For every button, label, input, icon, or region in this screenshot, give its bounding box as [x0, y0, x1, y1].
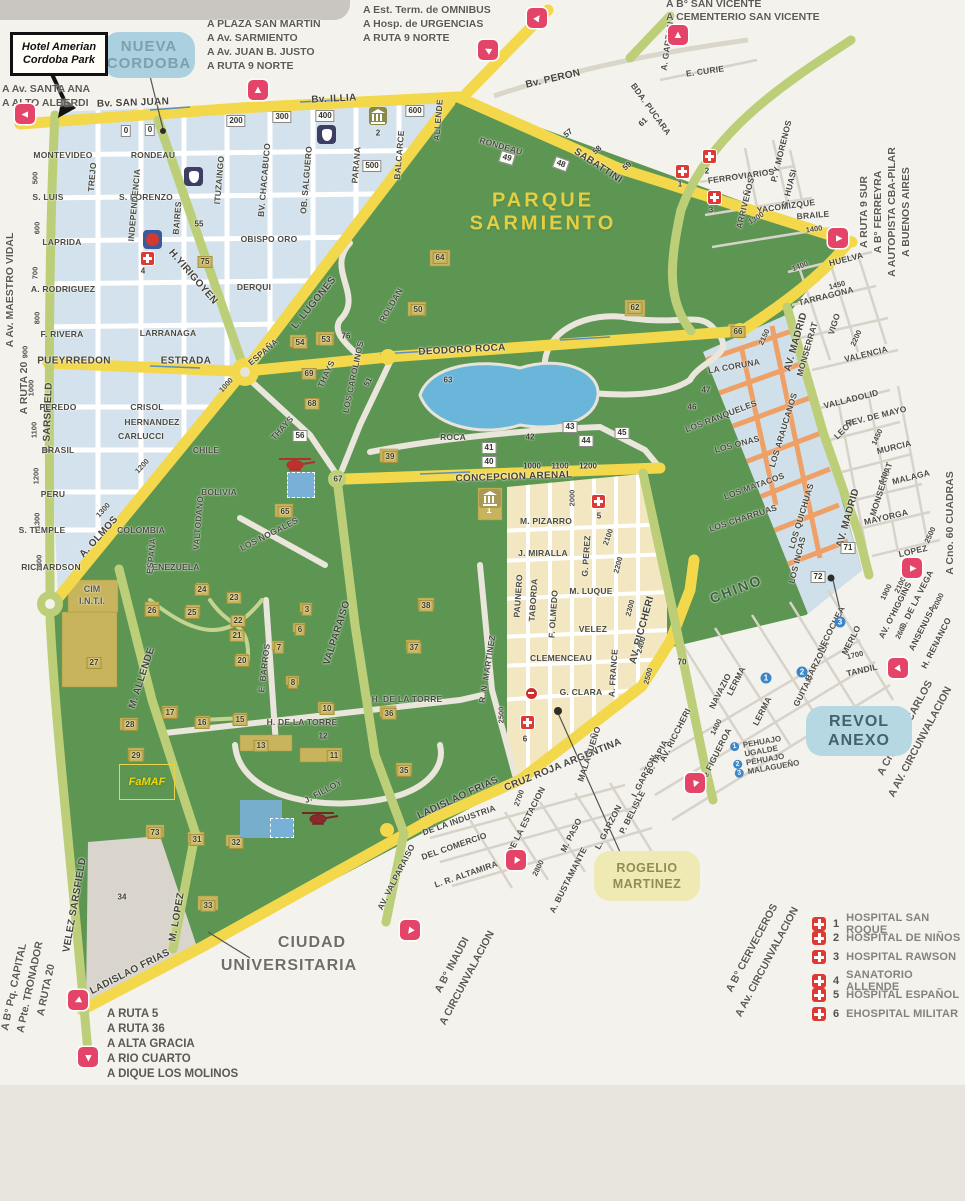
- hotel-name-line2: Cordoba Park: [23, 54, 95, 67]
- block-number: 37: [407, 642, 422, 654]
- block-number: 42: [526, 433, 535, 442]
- block-number: 62: [628, 302, 643, 314]
- destination-label: A RUTA 9 NORTE: [207, 60, 294, 72]
- route-destination: A ALTA GRACIA: [107, 1038, 195, 1050]
- street-label: CHILE: [193, 445, 220, 455]
- destination-label: A Av. JUAN B. JUSTO: [207, 46, 315, 58]
- destination-label: A BUENOS AIRES: [900, 167, 912, 257]
- block-number: 65: [278, 506, 293, 518]
- route-destination: A RUTA 36: [107, 1023, 165, 1035]
- hospital-number: 1: [833, 918, 839, 930]
- street-label: J. MIRALLA: [518, 548, 568, 558]
- hospital-number: 4: [833, 975, 839, 987]
- block-number: 16: [195, 717, 210, 729]
- block-number: 1100: [551, 462, 568, 471]
- block-number: 25: [185, 607, 200, 619]
- destination-label: A Hosp. de URGENCIAS: [363, 18, 483, 30]
- block-number: 69: [302, 368, 317, 380]
- destination-label: A RUTA 9 SUR: [858, 176, 870, 248]
- hospital-list-row: 2HOSPITAL DE NIÑOS: [812, 931, 960, 945]
- block-number: 32: [229, 837, 244, 849]
- block-number: 54: [293, 337, 308, 349]
- blue-dot-marker: 1: [761, 673, 772, 684]
- street-label: G. CLARA: [560, 687, 603, 697]
- destination-label: A Av. SARMIENTO: [207, 32, 298, 44]
- arrow-glyph: ▲: [71, 993, 86, 1008]
- precinto-shield-icon: [317, 125, 336, 144]
- area-label: SARMIENTO: [470, 213, 617, 236]
- block-number: 10: [320, 703, 335, 715]
- route-destination: A RIO CUARTO: [107, 1053, 191, 1065]
- block-number: 1: [678, 180, 682, 189]
- block-number: 39: [383, 451, 398, 463]
- block-number: 40: [482, 456, 497, 468]
- street-label: OBISPO ORO: [241, 234, 298, 244]
- street-label: CRISOL: [130, 402, 163, 412]
- hospital-cross-icon: [707, 190, 722, 205]
- direction-arrow-marker: ▲: [902, 558, 922, 578]
- street-label: VELEZ: [579, 624, 607, 634]
- ur1-shield-icon: [184, 167, 203, 186]
- block-number: 55: [195, 220, 204, 229]
- destination-label: A PLAZA SAN MARTIN: [207, 18, 321, 30]
- area-label: I.N.T.I.: [79, 596, 105, 606]
- street-label: ESTRADA: [161, 356, 211, 367]
- block-number: 11: [327, 750, 341, 762]
- block-number: 41: [482, 442, 497, 454]
- block-number: 35: [397, 765, 412, 777]
- hospital-name: HOSPITAL ESPAÑOL: [846, 989, 959, 1001]
- red-circle-1-icon: [143, 230, 162, 249]
- direction-arrow-marker: ▲: [78, 1047, 98, 1067]
- distance-number: 900: [21, 346, 30, 359]
- nueva-line2: CORDOBA: [107, 55, 192, 72]
- revol-anexo-label: REVOL ANEXO: [806, 706, 912, 756]
- distance-number: 1200: [32, 468, 41, 485]
- block-number: 1200: [579, 462, 597, 471]
- block-number: 23: [227, 592, 242, 604]
- block-number: 22: [231, 615, 246, 627]
- street-label: H. DE LA TORRE: [267, 717, 338, 727]
- hospital-number: 5: [833, 989, 839, 1001]
- street-label: BRASIL: [42, 445, 75, 455]
- block-number: 67: [334, 475, 343, 484]
- block-number: 46: [688, 403, 697, 412]
- block-number: 47: [702, 386, 711, 395]
- street-label: CARLUCCI: [118, 431, 164, 441]
- block-number: 300: [272, 111, 291, 123]
- arrow-glyph: ▲: [402, 922, 417, 937]
- hospital-number: 3: [833, 951, 839, 963]
- street-label: A. RODRIGUEZ: [31, 284, 95, 294]
- arrow-glyph: ▲: [83, 1052, 94, 1063]
- hospital-cross-icon: [812, 931, 826, 945]
- street-label: M. PIZARRO: [520, 516, 572, 526]
- block-number: 1000: [523, 462, 541, 471]
- block-number: 3: [302, 604, 312, 616]
- distance-number: 1300: [33, 513, 42, 530]
- block-number: 73: [148, 827, 163, 839]
- block-number: 17: [163, 707, 178, 719]
- distance-number: 1100: [30, 422, 39, 438]
- area-label: PARQUE: [492, 190, 594, 213]
- arrow-glyph: ▲: [906, 563, 917, 574]
- hospital-cross-icon: [812, 974, 826, 988]
- blue-dot-marker: 3: [734, 768, 744, 778]
- famaf-text: FaMAF: [129, 776, 166, 788]
- hospital-list-row: 3HOSPITAL RAWSON: [812, 950, 956, 964]
- hospital-cross-icon: [591, 494, 606, 509]
- destination-label: A AUTOPISTA CBA-PILAR: [886, 147, 898, 277]
- street-label: F. RIVERA: [41, 329, 84, 339]
- scan-edge: [0, 0, 350, 20]
- hospital-cross-icon: [702, 149, 717, 164]
- destination-label: A B° FERREYRA: [872, 171, 884, 254]
- block-number: 56: [293, 430, 308, 442]
- block-number: 2: [705, 167, 709, 176]
- block-number: 200: [226, 115, 245, 127]
- street-label: BOLIVIA: [201, 487, 237, 497]
- block-number: 2: [376, 129, 380, 138]
- revol-line1: REVOL: [829, 712, 889, 731]
- direction-arrow-marker: ▲: [248, 80, 268, 100]
- block-number: 34: [118, 893, 127, 902]
- street-label: COLOMBIA: [117, 525, 165, 535]
- distance-number: 1000: [27, 380, 36, 397]
- block-number: 70: [678, 658, 687, 667]
- direction-arrow-marker: ▲: [400, 920, 420, 940]
- street-label: HERNANDEZ: [124, 417, 179, 427]
- hospital-cross-icon: [812, 1007, 826, 1021]
- block-number: 31: [190, 834, 205, 846]
- tribunales-federales-icon: [479, 489, 501, 508]
- block-number: 24: [195, 584, 210, 596]
- destination-label: A CEMENTERIO SAN VICENTE: [666, 11, 820, 23]
- street-label: S. LUIS: [32, 192, 63, 202]
- block-number: 0: [121, 125, 131, 137]
- direction-arrow-marker: ▲: [506, 850, 526, 870]
- heliport-icon: [270, 818, 294, 838]
- direction-arrow-marker: ▲: [527, 8, 547, 28]
- heliport-icon: [287, 472, 315, 498]
- blue-dot-marker: 3: [835, 617, 846, 628]
- street-label: PERU: [41, 489, 65, 499]
- nueva-line1: NUEVA: [121, 38, 177, 55]
- block-number: 4: [141, 267, 145, 276]
- distance-number: 2500: [497, 707, 506, 724]
- block-number: 36: [382, 708, 397, 720]
- block-number: 66: [731, 326, 746, 338]
- distance-number: 1400: [35, 555, 44, 572]
- direction-arrow-marker: ▲: [828, 228, 848, 248]
- direction-arrow-marker: ▲: [668, 25, 688, 45]
- block-number: 15: [233, 714, 248, 726]
- block-number: 6: [295, 624, 305, 636]
- distance-number: 500: [31, 172, 40, 185]
- hospital-number: 2: [833, 932, 839, 944]
- hospital-cross-icon: [812, 988, 826, 1002]
- distance-number: 800: [33, 312, 42, 325]
- direction-arrow-marker: ▲: [685, 773, 705, 793]
- arrow-glyph: ▲: [673, 30, 684, 41]
- distance-number: 700: [31, 267, 40, 280]
- hospital-cross-icon: [520, 715, 535, 730]
- direction-arrow-marker: ▲: [68, 990, 88, 1010]
- arrow-glyph: ▲: [529, 10, 544, 25]
- block-number: 600: [405, 105, 424, 117]
- block-number: 5: [597, 512, 601, 521]
- direction-arrow-marker: ▲: [478, 40, 498, 60]
- block-number: 20: [235, 655, 250, 667]
- block-number: 75: [198, 256, 213, 268]
- revol-line2: ANEXO: [828, 731, 890, 750]
- street-label: H. DE LA TORRE: [372, 694, 443, 704]
- route-destination: A DIQUE LOS MOLINOS: [107, 1068, 238, 1080]
- block-number: 21: [230, 630, 245, 642]
- hospital-list-row: 5HOSPITAL ESPAÑOL: [812, 988, 959, 1002]
- street-label: CLEMENCEAU: [530, 653, 592, 663]
- block-number: 68: [305, 398, 320, 410]
- street-label: LAPRIDA: [42, 237, 81, 247]
- hospital-cross-icon: [140, 251, 155, 266]
- rogelio-line1: ROGELIO: [616, 860, 677, 876]
- block-number: 38: [419, 600, 434, 612]
- nueva-cordoba-label: NUEVA CORDOBA: [103, 32, 195, 78]
- arrow-glyph: ▲: [509, 853, 524, 868]
- block-number: 28: [123, 719, 138, 731]
- street-label: RONDEAU: [131, 150, 175, 160]
- block-number: 500: [362, 160, 381, 172]
- arrow-glyph: ▲: [19, 109, 30, 120]
- block-number: 53: [319, 334, 334, 346]
- street-label: S. LORENZO: [119, 192, 173, 202]
- hotel-name-line1: Hotel Amerian: [22, 41, 96, 54]
- hospital-name: HOSPITAL DE NIÑOS: [846, 932, 960, 944]
- arrow-glyph: ▲: [832, 233, 843, 244]
- hospital-list-row: 6EHOSPITAL MILITAR: [812, 1007, 958, 1021]
- street-label: M. LUQUE: [569, 586, 612, 596]
- arrow-glyph: ▲: [253, 85, 264, 96]
- block-number: 27: [87, 657, 102, 669]
- hospital-number: 6: [833, 1008, 839, 1020]
- famaf-label: FaMAF: [119, 764, 175, 800]
- block-number: 43: [563, 421, 578, 433]
- area-label: UNIVERSITARIA: [221, 957, 357, 975]
- block-number: 33: [201, 900, 216, 912]
- block-number: 76: [342, 332, 351, 341]
- street-label: MONTEVIDEO: [33, 150, 92, 160]
- hospital-name: EHOSPITAL MILITAR: [846, 1008, 958, 1020]
- block-number: 29: [129, 750, 144, 762]
- block-number: 8: [288, 677, 298, 689]
- block-number: 7: [274, 642, 284, 654]
- arrow-glyph: ▲: [890, 660, 905, 675]
- block-number: 12: [319, 732, 328, 741]
- park-lake: [420, 363, 598, 430]
- direction-arrow-marker: ▲: [15, 104, 35, 124]
- destination-label: A Av. SANTA ANA: [2, 83, 90, 95]
- street-label: LARRANAGA: [140, 328, 197, 338]
- distance-number: 2000: [568, 490, 577, 507]
- area-label: CIM: [84, 584, 101, 594]
- hospital-cross-icon: [812, 950, 826, 964]
- block-number: 26: [145, 605, 160, 617]
- rogelio-line2: MARTINEZ: [613, 876, 682, 892]
- block-number: 6: [523, 735, 527, 744]
- block-number: 71: [841, 542, 856, 554]
- area-label: CIUDAD: [278, 934, 346, 952]
- route-destination: A RUTA 5: [107, 1008, 158, 1020]
- direction-arrow-marker: ▲: [888, 658, 908, 678]
- legend: REFERENCIAS ESTACION DE SERVICIO GAS NAT…: [0, 1085, 965, 1201]
- street-label: ROCA: [440, 432, 466, 442]
- block-number: 45: [615, 427, 630, 439]
- block-number: 64: [433, 252, 448, 264]
- destination-label: A Cno. 60 CUADRAS: [944, 471, 956, 574]
- arrow-glyph: ▲: [481, 43, 496, 58]
- tribunal-justicia-icon: [369, 107, 387, 125]
- hotel-callout: Hotel Amerian Cordoba Park: [10, 32, 108, 76]
- street-label: PEREDO: [39, 402, 76, 412]
- rogelio-martinez-label: ROGELIO MARTINEZ: [594, 851, 700, 901]
- block-number: 0: [145, 124, 155, 136]
- street-label: RICHARDSON: [21, 562, 81, 572]
- street-label: PUEYRREDON: [37, 356, 111, 367]
- city-map: A PLAZA SAN MARTINA Av. SARMIENTOA Av. J…: [0, 0, 965, 1201]
- arrow-glyph: ▲: [688, 776, 702, 790]
- street-label: S. TEMPLE: [19, 525, 66, 535]
- block-number: 13: [254, 740, 269, 752]
- destination-label: A B° SAN VICENTE: [666, 0, 761, 10]
- block-number: 50: [411, 304, 426, 316]
- block-number: 63: [444, 376, 453, 385]
- blue-dot-marker: 2: [797, 667, 808, 678]
- block-number: 72: [811, 571, 826, 583]
- hospital-name: HOSPITAL RAWSON: [846, 951, 956, 963]
- block-number: 44: [579, 435, 594, 447]
- block-number: 400: [315, 110, 334, 122]
- destination-label: A Av. MAESTRO VIDAL: [4, 233, 16, 348]
- no-entry-icon: [525, 687, 538, 700]
- destination-label: A RUTA 9 NORTE: [363, 32, 450, 44]
- street-label: DERQUI: [237, 282, 271, 292]
- block-number: 3: [709, 206, 713, 215]
- hospital-cross-icon: [675, 164, 690, 179]
- hospital-cross-icon: [812, 917, 826, 931]
- distance-number: 600: [33, 222, 42, 235]
- destination-label: A Est. Term. de OMNIBUS: [363, 4, 491, 16]
